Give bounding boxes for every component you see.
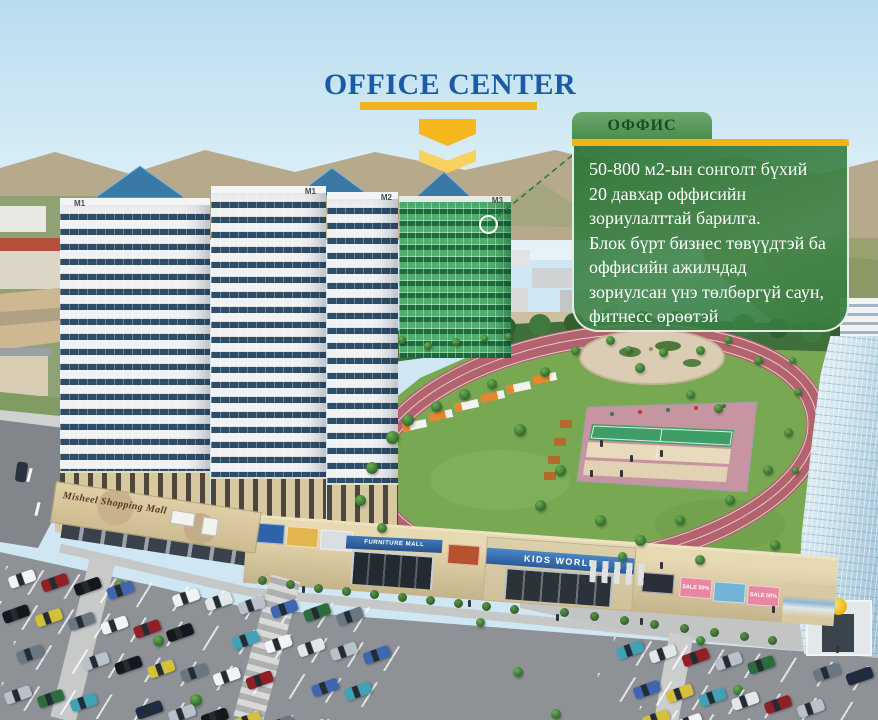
tree	[618, 552, 627, 561]
car	[698, 687, 727, 707]
storefront-poster	[713, 581, 746, 603]
tree	[725, 495, 735, 505]
tree	[794, 388, 802, 396]
car	[615, 640, 644, 660]
car	[233, 711, 262, 720]
tree	[696, 346, 705, 355]
callout-text-line: оффисийн ажилчдад	[589, 255, 847, 280]
building-label: M3	[492, 196, 503, 205]
car	[7, 569, 36, 589]
car	[231, 630, 260, 650]
tree	[686, 390, 695, 399]
bush	[740, 632, 749, 641]
tree	[386, 431, 399, 444]
callout-text-line: Блок бүрт бизнес төвүүдтэй ба	[589, 231, 847, 256]
car	[266, 715, 295, 720]
crosswalk	[589, 560, 646, 586]
car	[204, 591, 233, 611]
car	[648, 643, 677, 663]
tree	[366, 462, 378, 474]
storefront-poster	[447, 544, 480, 566]
car	[665, 683, 694, 703]
car	[264, 634, 293, 654]
person	[302, 586, 305, 593]
car	[67, 611, 96, 631]
car	[796, 698, 825, 718]
callout-text-line: 50-800 м2-ын сонголт бүхий	[589, 157, 847, 182]
tree	[431, 401, 442, 412]
building-hotspot-marker[interactable]	[479, 215, 498, 234]
tree	[535, 500, 546, 511]
car	[1, 604, 30, 624]
tree	[355, 495, 366, 506]
car	[165, 622, 194, 642]
tree	[487, 379, 497, 389]
bush	[680, 624, 689, 633]
sale-poster: SALE 50%	[679, 577, 712, 599]
car	[133, 619, 162, 639]
tree	[714, 404, 723, 413]
tree	[792, 467, 799, 474]
storefront-poster	[286, 526, 319, 548]
car	[36, 688, 65, 708]
bush	[426, 596, 435, 605]
car	[763, 694, 792, 714]
bush	[454, 599, 463, 608]
tree	[675, 515, 685, 525]
car	[40, 572, 69, 592]
page-title: OFFICE CENTER	[320, 68, 580, 102]
bush	[768, 636, 777, 645]
car	[147, 659, 176, 679]
mall-end-wall	[781, 582, 836, 626]
bush	[342, 587, 351, 596]
bush	[510, 605, 519, 614]
bush	[620, 616, 629, 625]
bush	[370, 590, 379, 599]
car	[845, 666, 874, 686]
person	[556, 614, 559, 621]
tree	[571, 346, 580, 355]
tree	[459, 389, 470, 400]
person	[836, 646, 839, 653]
tree	[770, 540, 780, 550]
person	[468, 600, 471, 607]
bush	[314, 584, 323, 593]
tree	[635, 535, 646, 546]
car	[34, 607, 63, 627]
bush	[286, 580, 295, 589]
bush	[710, 628, 719, 637]
car	[171, 587, 200, 607]
tree	[724, 336, 732, 344]
tree	[402, 414, 414, 426]
person	[660, 562, 663, 569]
tree	[789, 357, 796, 364]
person	[590, 470, 593, 477]
car	[3, 685, 32, 705]
office-callout-body: 50-800 м2-ын сонголт бүхий 20 давхар офф…	[572, 146, 849, 332]
building-label: M1	[74, 199, 85, 208]
car	[81, 651, 110, 671]
car	[15, 644, 44, 664]
car	[270, 599, 299, 619]
tree	[481, 335, 488, 342]
person	[600, 440, 603, 447]
building-label: M1	[305, 187, 316, 196]
tree	[540, 367, 550, 377]
callout-text-line: фитнесс өрөөтэй	[589, 304, 847, 329]
tree	[763, 465, 773, 475]
car	[237, 595, 266, 615]
tree	[424, 342, 432, 350]
car	[114, 655, 143, 675]
tree	[696, 636, 705, 645]
tree	[476, 618, 485, 627]
bush	[258, 576, 267, 585]
sale-poster: SALE 50%	[747, 585, 780, 607]
tree	[555, 465, 566, 476]
tree	[606, 336, 615, 345]
tree	[505, 333, 512, 340]
bush	[590, 612, 599, 621]
car	[297, 637, 326, 657]
car	[303, 602, 332, 622]
car	[812, 662, 841, 682]
title-underline	[360, 102, 537, 110]
tree	[784, 428, 793, 437]
car	[212, 666, 241, 686]
tree	[398, 336, 406, 344]
tree	[514, 424, 526, 436]
tree	[635, 363, 645, 373]
person	[620, 470, 623, 477]
tree	[659, 348, 668, 357]
person	[772, 606, 775, 613]
callout-accent-bar	[572, 139, 849, 146]
car	[100, 615, 129, 635]
canopy-poster	[201, 516, 220, 536]
car	[343, 681, 372, 701]
callout-text-line: 20 давхар оффисийн	[589, 182, 847, 207]
bush	[560, 608, 569, 617]
car	[167, 703, 196, 720]
office-center-masterplan: M1 M1 M2 M3 Misheel Shopping Mall FURNIT…	[0, 0, 878, 720]
building-tower-1: M1	[60, 198, 210, 513]
car	[674, 712, 703, 720]
car	[632, 679, 661, 699]
car	[714, 651, 743, 671]
callout-text-line: зориулсан үнэ төлбөргүй саун,	[589, 280, 847, 305]
car	[335, 606, 364, 626]
car	[641, 709, 670, 720]
car	[106, 580, 135, 600]
tree	[551, 709, 561, 719]
tree	[625, 346, 632, 353]
car	[245, 670, 274, 690]
storefront-poster	[641, 572, 674, 594]
car	[200, 707, 229, 720]
tree	[452, 338, 460, 346]
bush	[398, 593, 407, 602]
car	[69, 692, 98, 712]
car	[179, 662, 208, 682]
car	[135, 700, 164, 720]
tree	[513, 667, 523, 677]
callout-text-line: зориулалттай барилга.	[589, 206, 847, 231]
tree	[377, 523, 387, 533]
bush	[482, 602, 491, 611]
person	[630, 455, 633, 462]
building-tower-3: M2	[327, 192, 398, 525]
car	[73, 576, 102, 596]
car	[311, 677, 340, 697]
building-label: M2	[381, 193, 392, 202]
office-callout-tab[interactable]: ОФФИС	[572, 112, 712, 139]
car	[329, 641, 358, 661]
tree	[695, 555, 705, 565]
building-tower-2: M1	[211, 186, 326, 519]
canopy-poster	[170, 510, 196, 527]
person	[640, 618, 643, 625]
circular-plaza	[580, 330, 724, 384]
entrance-doors	[350, 550, 434, 590]
tree	[754, 356, 763, 365]
person	[660, 450, 663, 457]
car	[747, 655, 776, 675]
car	[362, 645, 391, 665]
furniture-mall-entrance: FURNITURE MALL	[343, 534, 442, 591]
car	[731, 691, 760, 711]
tree	[595, 515, 606, 526]
car	[681, 647, 710, 667]
bush	[650, 620, 659, 629]
